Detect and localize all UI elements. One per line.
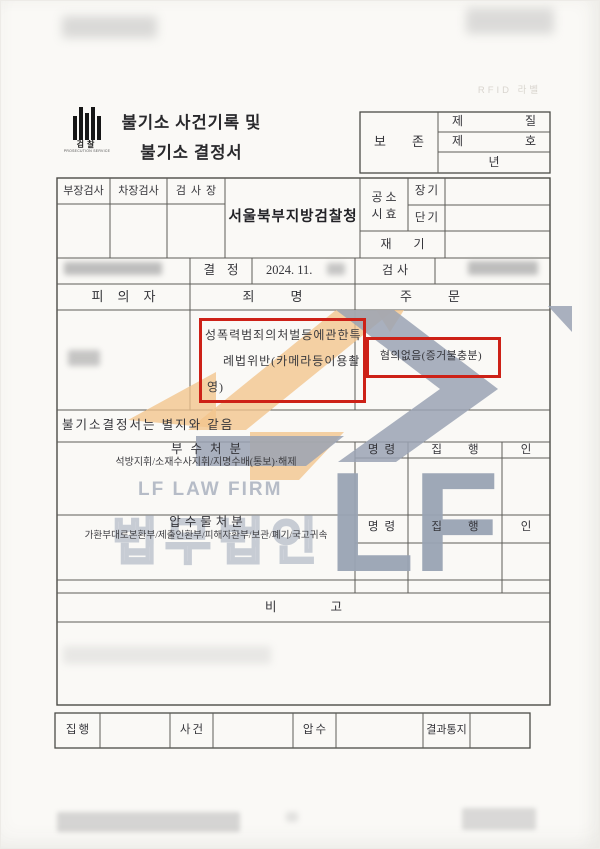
redacted-remarks-line — [63, 646, 271, 664]
scanned-document-page: LF LAW FIRM 법무법인 LF RFID 라벨 검찰 PROSECUTI… — [0, 0, 600, 849]
redacted-case-number — [64, 262, 162, 275]
redacted-prosecutor-name — [468, 261, 538, 275]
redacted-bottom-right — [462, 808, 536, 830]
redacted-top-right — [466, 8, 554, 34]
redacted-top-left — [62, 16, 157, 38]
redacted-suspect-name — [68, 350, 100, 366]
redacted-decision-day — [327, 263, 345, 275]
redacted-bottom-left — [57, 812, 240, 832]
redacted-bottom-mark — [286, 812, 298, 822]
